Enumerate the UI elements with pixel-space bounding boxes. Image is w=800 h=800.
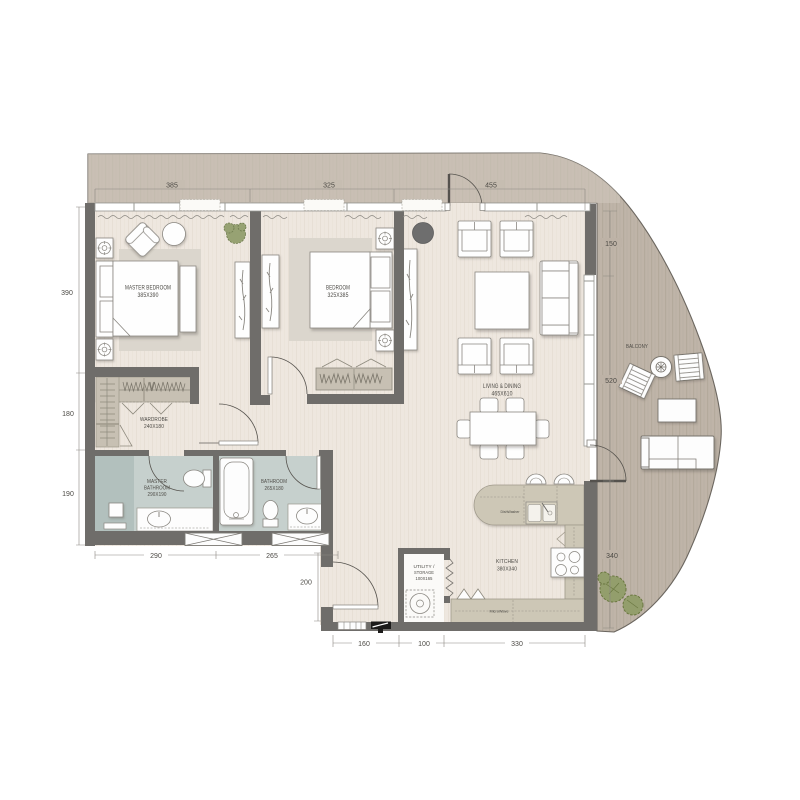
svg-text:330: 330 [511, 641, 523, 648]
svg-text:MicroWave: MicroWave [490, 609, 510, 614]
svg-text:385X390: 385X390 [138, 292, 159, 299]
svg-text:BATHROOM: BATHROOM [261, 479, 287, 485]
svg-text:DishWasher: DishWasher [501, 509, 521, 514]
svg-text:WARDROBE: WARDROBE [140, 417, 168, 423]
svg-text:BALCONY: BALCONY [626, 344, 648, 350]
svg-text:520: 520 [605, 378, 617, 385]
svg-text:325X385: 325X385 [328, 292, 349, 299]
svg-text:UTILITY /: UTILITY / [414, 564, 436, 570]
svg-text:465X610: 465X610 [492, 392, 513, 398]
svg-text:100X165: 100X165 [416, 576, 433, 582]
svg-text:STORAGE: STORAGE [414, 570, 434, 576]
svg-text:190: 190 [62, 491, 74, 498]
svg-text:325: 325 [323, 183, 335, 190]
svg-text:240X180: 240X180 [144, 424, 164, 430]
svg-text:380X340: 380X340 [497, 567, 517, 573]
svg-text:180: 180 [62, 411, 74, 418]
svg-text:MASTER BEDROOM: MASTER BEDROOM [125, 285, 171, 292]
svg-text:340: 340 [606, 553, 618, 560]
svg-text:290: 290 [150, 553, 162, 560]
svg-text:100: 100 [418, 641, 430, 648]
svg-text:390: 390 [61, 290, 73, 297]
svg-text:KITCHEN: KITCHEN [496, 559, 518, 565]
svg-text:265X180: 265X180 [265, 486, 284, 492]
svg-text:455: 455 [485, 183, 497, 190]
svg-text:150: 150 [605, 241, 617, 248]
svg-text:200: 200 [300, 580, 312, 587]
svg-text:385: 385 [166, 183, 178, 190]
svg-text:MASTER: MASTER [147, 479, 167, 485]
svg-text:290X190: 290X190 [148, 492, 167, 498]
svg-text:160: 160 [358, 641, 370, 648]
svg-text:LIVING & DINING: LIVING & DINING [483, 384, 521, 390]
svg-text:265: 265 [266, 553, 278, 560]
svg-text:BEDROOM: BEDROOM [326, 285, 350, 292]
